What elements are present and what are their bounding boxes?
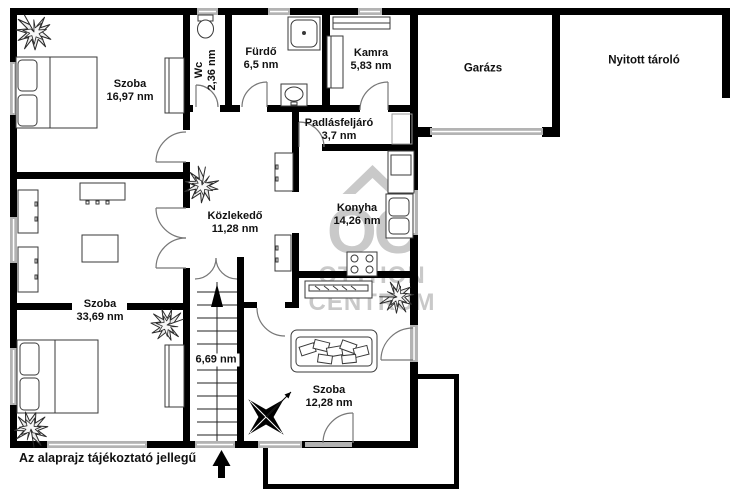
bed-icon (17, 340, 98, 413)
shower-icon (288, 17, 320, 50)
attic-hatch-icon (392, 114, 412, 144)
floor-plan-drawing (0, 0, 738, 500)
floor-plan: OC OTTHON CENTRUM (0, 0, 738, 500)
wardrobe-icon (165, 345, 184, 407)
entrance-arrow-icon (213, 450, 231, 478)
compass-rose-icon (250, 392, 291, 433)
plant-icon (16, 15, 51, 50)
toilet-icon (198, 15, 214, 38)
wardrobe-icon (165, 58, 184, 113)
kitchen-sink-icon (386, 194, 413, 238)
terrace-outline (263, 374, 459, 489)
stove-icon (347, 252, 377, 276)
bed-icon (16, 57, 97, 128)
table-icon (82, 235, 118, 262)
bathroom-sink-icon (281, 84, 307, 106)
garage-door (430, 128, 543, 135)
cabinet-icon (18, 190, 38, 292)
walls-layer (10, 8, 730, 448)
pantry-shelf-icon (327, 17, 390, 88)
sofa-icon (291, 330, 377, 372)
staircase (197, 280, 237, 441)
sideboard-icon (305, 281, 372, 298)
kitchen-counter-icon (388, 151, 414, 193)
plant-icon (148, 306, 184, 342)
sideboard-icon (80, 183, 125, 204)
hall-cabinet-icon (275, 153, 293, 271)
